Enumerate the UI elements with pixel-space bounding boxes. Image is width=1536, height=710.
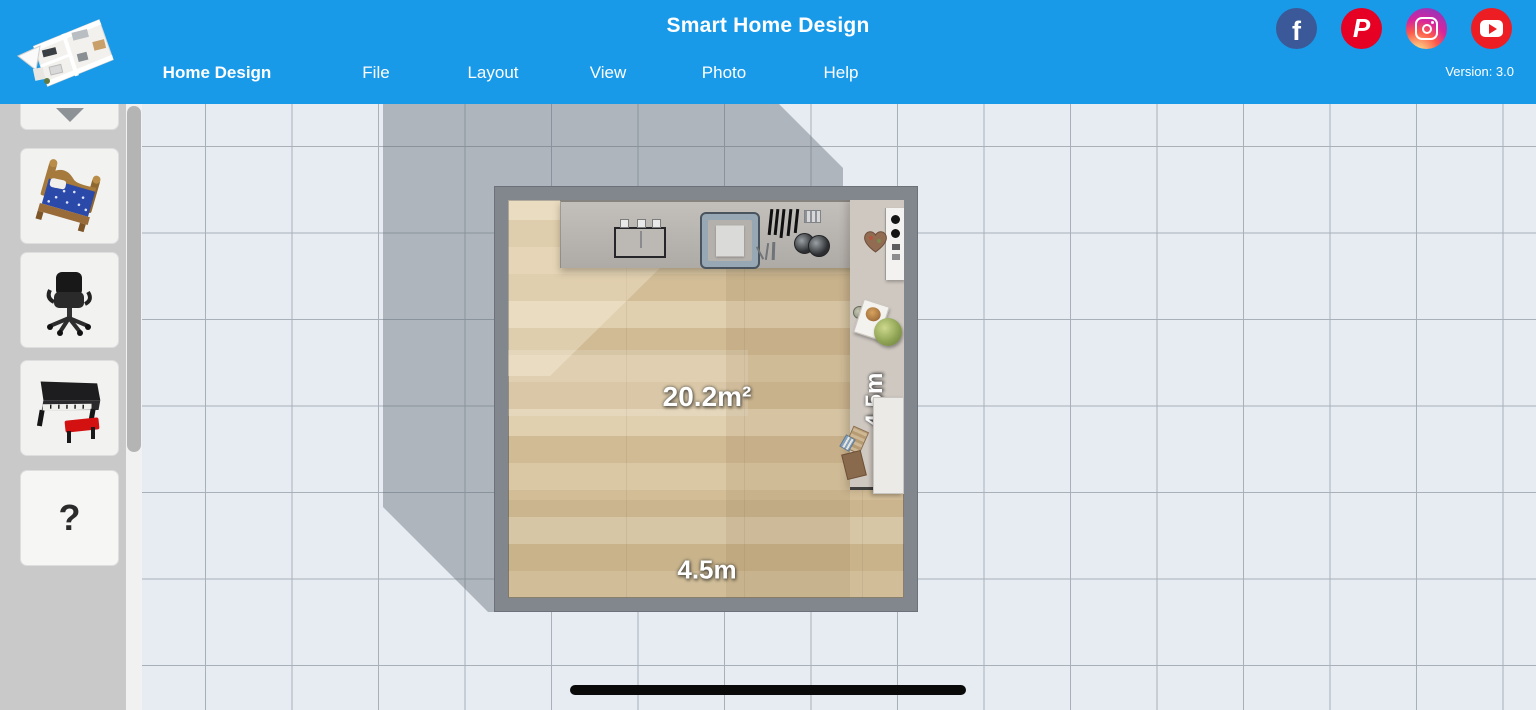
sidebar-item-office-chair[interactable] <box>20 252 119 348</box>
version-label: Version: 3.0 <box>1445 64 1514 79</box>
menu-file[interactable]: File <box>362 63 389 83</box>
app-logo-icon[interactable] <box>10 4 128 100</box>
sidebar-item-bed[interactable] <box>20 148 119 244</box>
instagram-frame <box>1415 17 1438 40</box>
side-table[interactable] <box>873 397 904 494</box>
menu-home-design[interactable]: Home Design <box>163 63 272 83</box>
sidebar-item-furniture-partial[interactable] <box>20 104 119 130</box>
youtube-icon[interactable] <box>1471 8 1512 49</box>
pinterest-icon[interactable]: P <box>1341 8 1382 49</box>
cabbage[interactable] <box>874 318 902 346</box>
horizontal-scroll-handle[interactable] <box>570 685 966 695</box>
instagram-lens <box>1422 24 1432 34</box>
sink-faucet <box>640 231 642 248</box>
app-header: Smart Home Design Home Design File Layou… <box>0 0 1536 104</box>
piano-icon <box>27 365 113 451</box>
sidebar-scrollbar-track[interactable] <box>126 104 142 710</box>
cabinet-knob <box>891 215 900 224</box>
oven-rack-icon[interactable] <box>804 210 821 223</box>
pinterest-glyph: P <box>1353 13 1370 44</box>
heart-wreath[interactable] <box>862 229 889 254</box>
menu-photo[interactable]: Photo <box>702 63 746 83</box>
floorplan[interactable]: 20.2m² 4.5m 4.5m <box>494 186 918 612</box>
menu-layout[interactable]: Layout <box>467 63 518 83</box>
bed-icon <box>27 153 113 239</box>
utensils-icon[interactable] <box>757 240 791 262</box>
sink-knob <box>620 219 629 228</box>
pot[interactable] <box>808 235 830 257</box>
furniture-partial-icon <box>56 108 84 122</box>
youtube-play-triangle <box>1489 24 1497 34</box>
sink[interactable] <box>614 227 666 258</box>
cabinet-detail <box>892 254 900 260</box>
sink-knob <box>652 219 661 228</box>
facebook-glyph: f <box>1292 16 1301 47</box>
instagram-dot <box>1431 21 1434 24</box>
page-title: Smart Home Design <box>667 14 870 38</box>
facebook-icon[interactable]: f <box>1276 8 1317 49</box>
youtube-box <box>1480 20 1503 37</box>
sidebar-item-unknown[interactable]: ? <box>20 470 119 566</box>
social-links: f P <box>1276 8 1512 49</box>
cabinet-detail <box>892 244 900 250</box>
stove-burner <box>716 225 744 256</box>
menu-view[interactable]: View <box>590 63 627 83</box>
cabinet-knob <box>891 229 900 238</box>
menu-help[interactable]: Help <box>824 63 859 83</box>
floorplan-interior: 20.2m² 4.5m 4.5m <box>508 200 904 598</box>
sidebar-scrollbar-thumb[interactable] <box>127 106 141 452</box>
sink-knob <box>637 219 646 228</box>
sidebar-item-piano[interactable] <box>20 360 119 456</box>
office-chair-icon <box>30 260 110 340</box>
furniture-sidebar: ? <box>0 104 126 710</box>
instagram-icon[interactable] <box>1406 8 1447 49</box>
stove[interactable] <box>700 212 760 269</box>
design-canvas[interactable]: 20.2m² 4.5m 4.5m <box>142 104 1536 710</box>
question-mark-label: ? <box>59 497 81 539</box>
area-label: 20.2m² <box>663 381 752 413</box>
width-dimension-label: 4.5m <box>677 555 736 586</box>
